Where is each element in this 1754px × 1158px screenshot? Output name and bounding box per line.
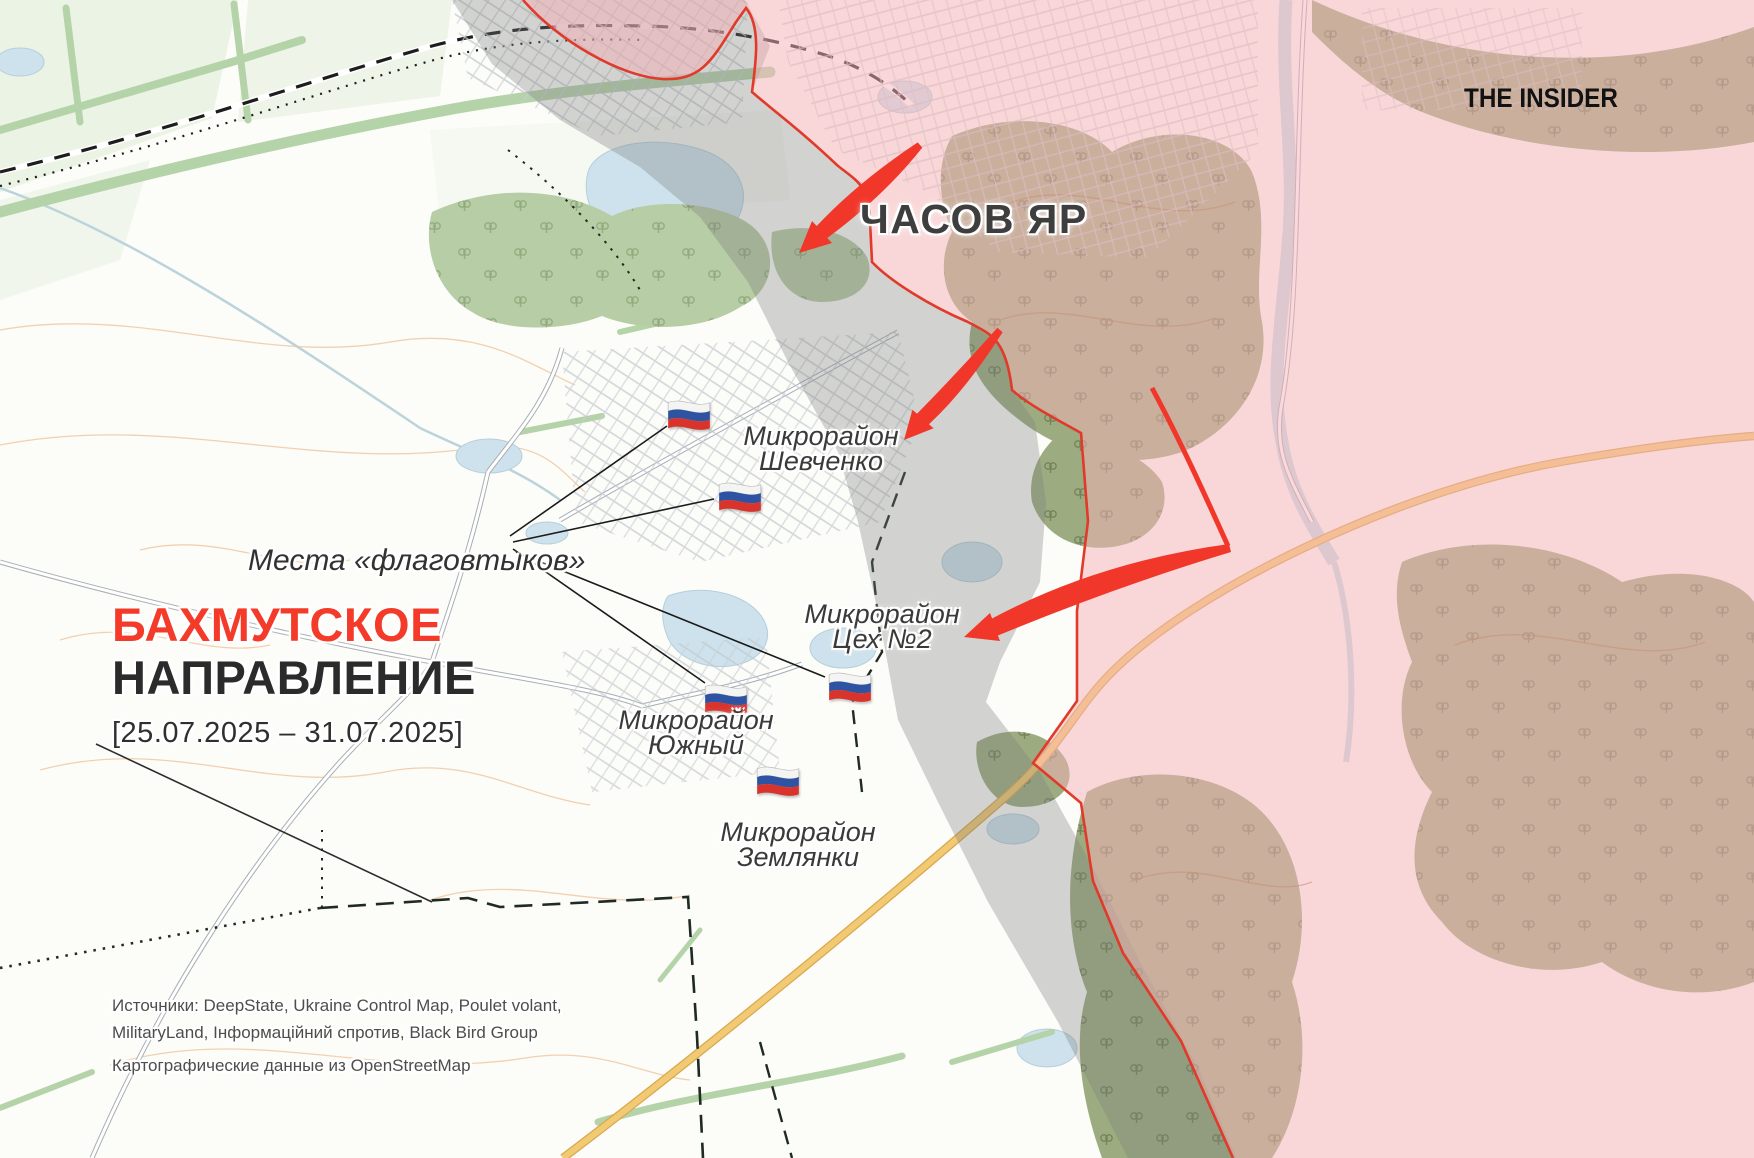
district-label-line: Шевченко — [759, 446, 883, 476]
russian-flag-icon — [755, 762, 801, 798]
russian-flag-icon — [717, 478, 763, 514]
map-title-block: БАХМУТСКОЕ НАПРАВЛЕНИЕ [25.07.2025 – 31.… — [112, 598, 476, 750]
district-label-tseh2: Микрорайон Цех №2 — [798, 602, 966, 652]
sources-line: MilitaryLand, Інформаційний спротив, Bla… — [112, 1019, 562, 1046]
sources-cartography-line: Картографические данные из OpenStreetMap — [112, 1052, 562, 1079]
map-title-direction-black: НАПРАВЛЕНИЕ — [112, 651, 476, 704]
district-label-shevchenko: Микрорайон Шевченко — [740, 424, 902, 474]
sources-line: Источники: DeepState, Ukraine Control Ma… — [112, 992, 562, 1019]
the-insider-logo: THE INSIDER — [1464, 83, 1618, 114]
map-date-range: [25.07.2025 – 31.07.2025] — [112, 717, 476, 750]
map-title-direction-red: БАХМУТСКОЕ — [112, 598, 476, 651]
district-label-yuzhny: Микрорайон Южный — [612, 708, 780, 758]
district-label-line: Цех №2 — [832, 624, 931, 654]
russian-flag-icon — [666, 396, 712, 432]
map-canvas — [0, 0, 1754, 1158]
war-map: ЧАСОВ ЯР Микрорайон Шевченко Микрорайон … — [0, 0, 1754, 1158]
sources-block: Источники: DeepState, Ukraine Control Ma… — [112, 992, 562, 1079]
city-label-chasiv-yar: ЧАСОВ ЯР — [860, 196, 1088, 243]
district-label-line: Землянки — [737, 842, 859, 872]
russian-flag-icon — [827, 668, 873, 704]
district-label-zemlyanki: Микрорайон Землянки — [712, 820, 884, 870]
district-label-line: Южный — [648, 730, 744, 760]
flag-note-label: Места «флаговтыков» — [248, 544, 585, 578]
